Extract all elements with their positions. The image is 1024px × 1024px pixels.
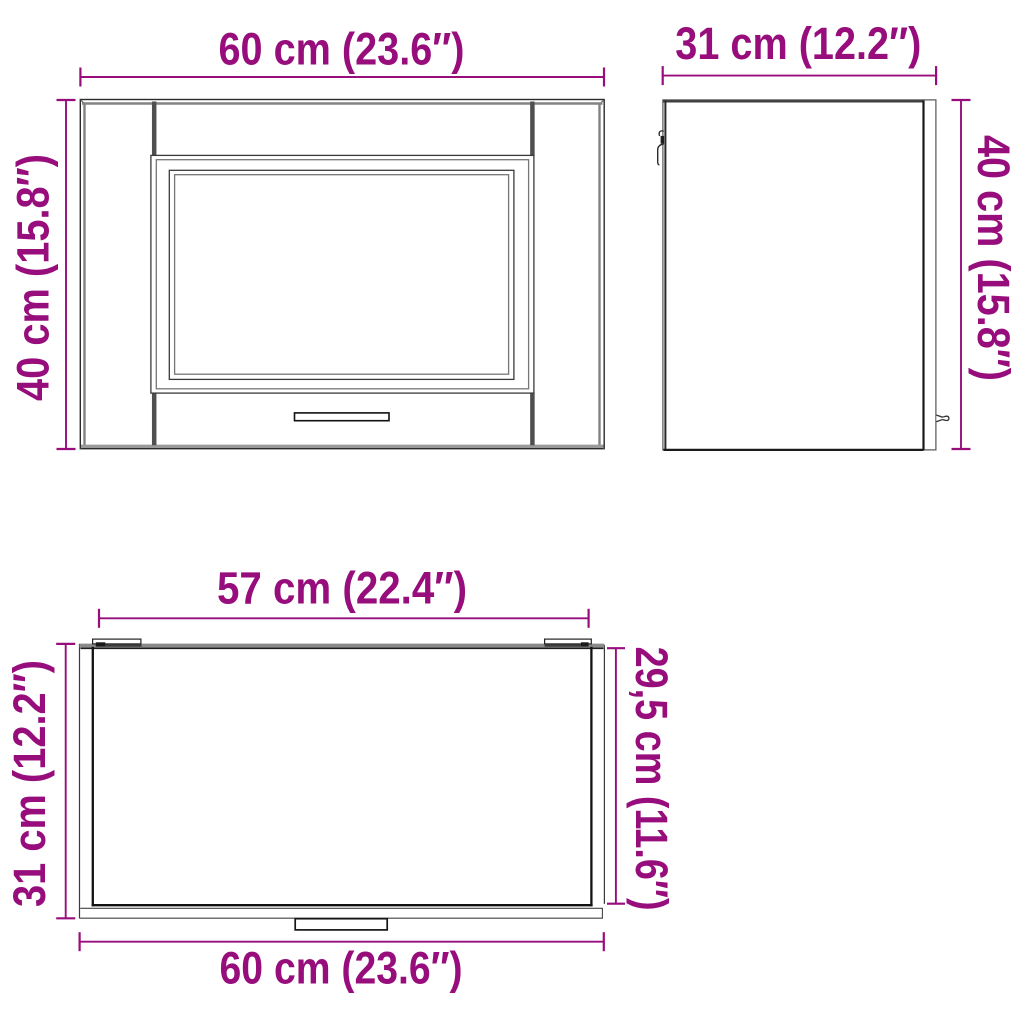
svg-text:31 cm (12.2″): 31 cm (12.2″) [675,18,921,69]
svg-text:40 cm (15.8″): 40 cm (15.8″) [968,135,1019,381]
svg-text:60 cm (23.6″): 60 cm (23.6″) [219,23,465,74]
svg-text:60 cm (23.6″): 60 cm (23.6″) [220,943,463,994]
svg-text:29,5 cm (11.6″): 29,5 cm (11.6″) [626,647,677,911]
svg-text:31 cm (12.2″): 31 cm (12.2″) [4,660,55,907]
svg-text:40 cm (15.8″): 40 cm (15.8″) [8,154,59,401]
svg-text:57 cm (22.4″): 57 cm (22.4″) [217,563,467,614]
